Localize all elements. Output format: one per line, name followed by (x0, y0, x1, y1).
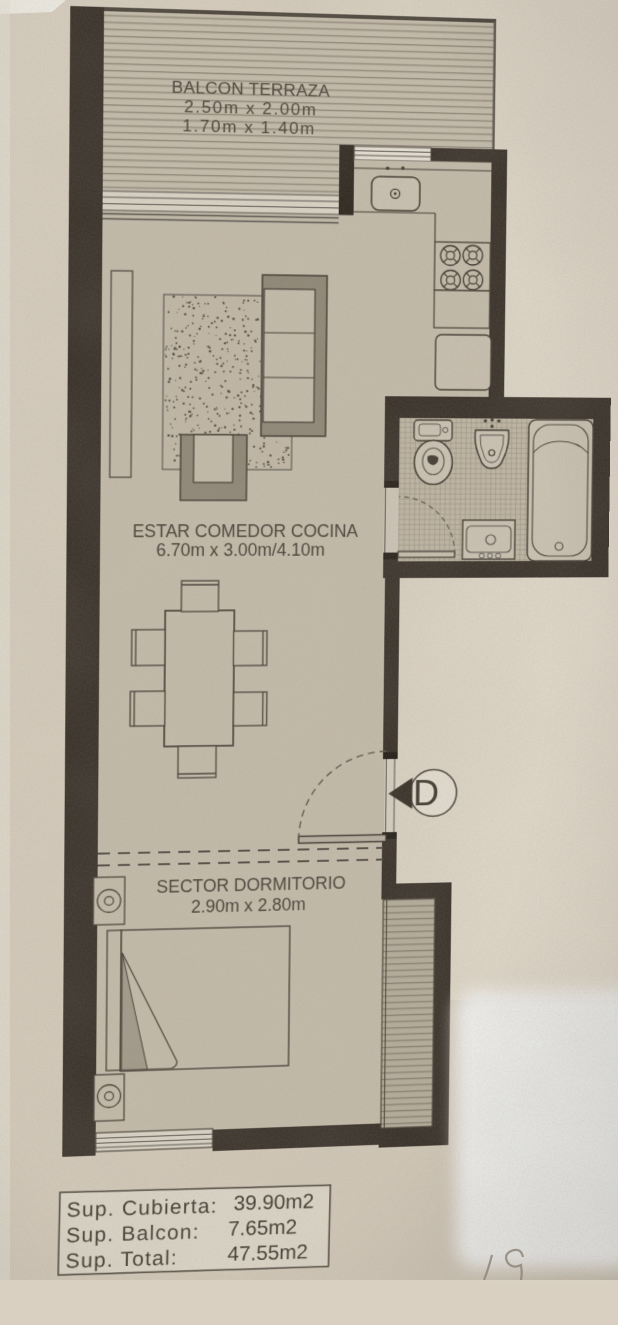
svg-text:6.70m x 3.00m/4.10m: 6.70m x 3.00m/4.10m (156, 540, 325, 560)
svg-text:Sup. Total:: Sup. Total: (65, 1245, 178, 1272)
svg-text:7.65m2: 7.65m2 (228, 1215, 298, 1241)
svg-text:D: D (413, 774, 439, 814)
svg-text:1.70m x 1.40m: 1.70m x 1.40m (182, 116, 316, 139)
svg-text:39.90m2: 39.90m2 (233, 1189, 314, 1215)
svg-text:Sup. Balcon:: Sup. Balcon: (66, 1219, 200, 1247)
svg-text:Sup. Cubierta:: Sup. Cubierta: (66, 1194, 218, 1222)
svg-text:ESTAR COMEDOR COCINA: ESTAR COMEDOR COCINA (132, 522, 358, 541)
svg-text:47.55m2: 47.55m2 (227, 1240, 308, 1266)
svg-text:2.90m x 2.80m: 2.90m x 2.80m (191, 895, 306, 917)
